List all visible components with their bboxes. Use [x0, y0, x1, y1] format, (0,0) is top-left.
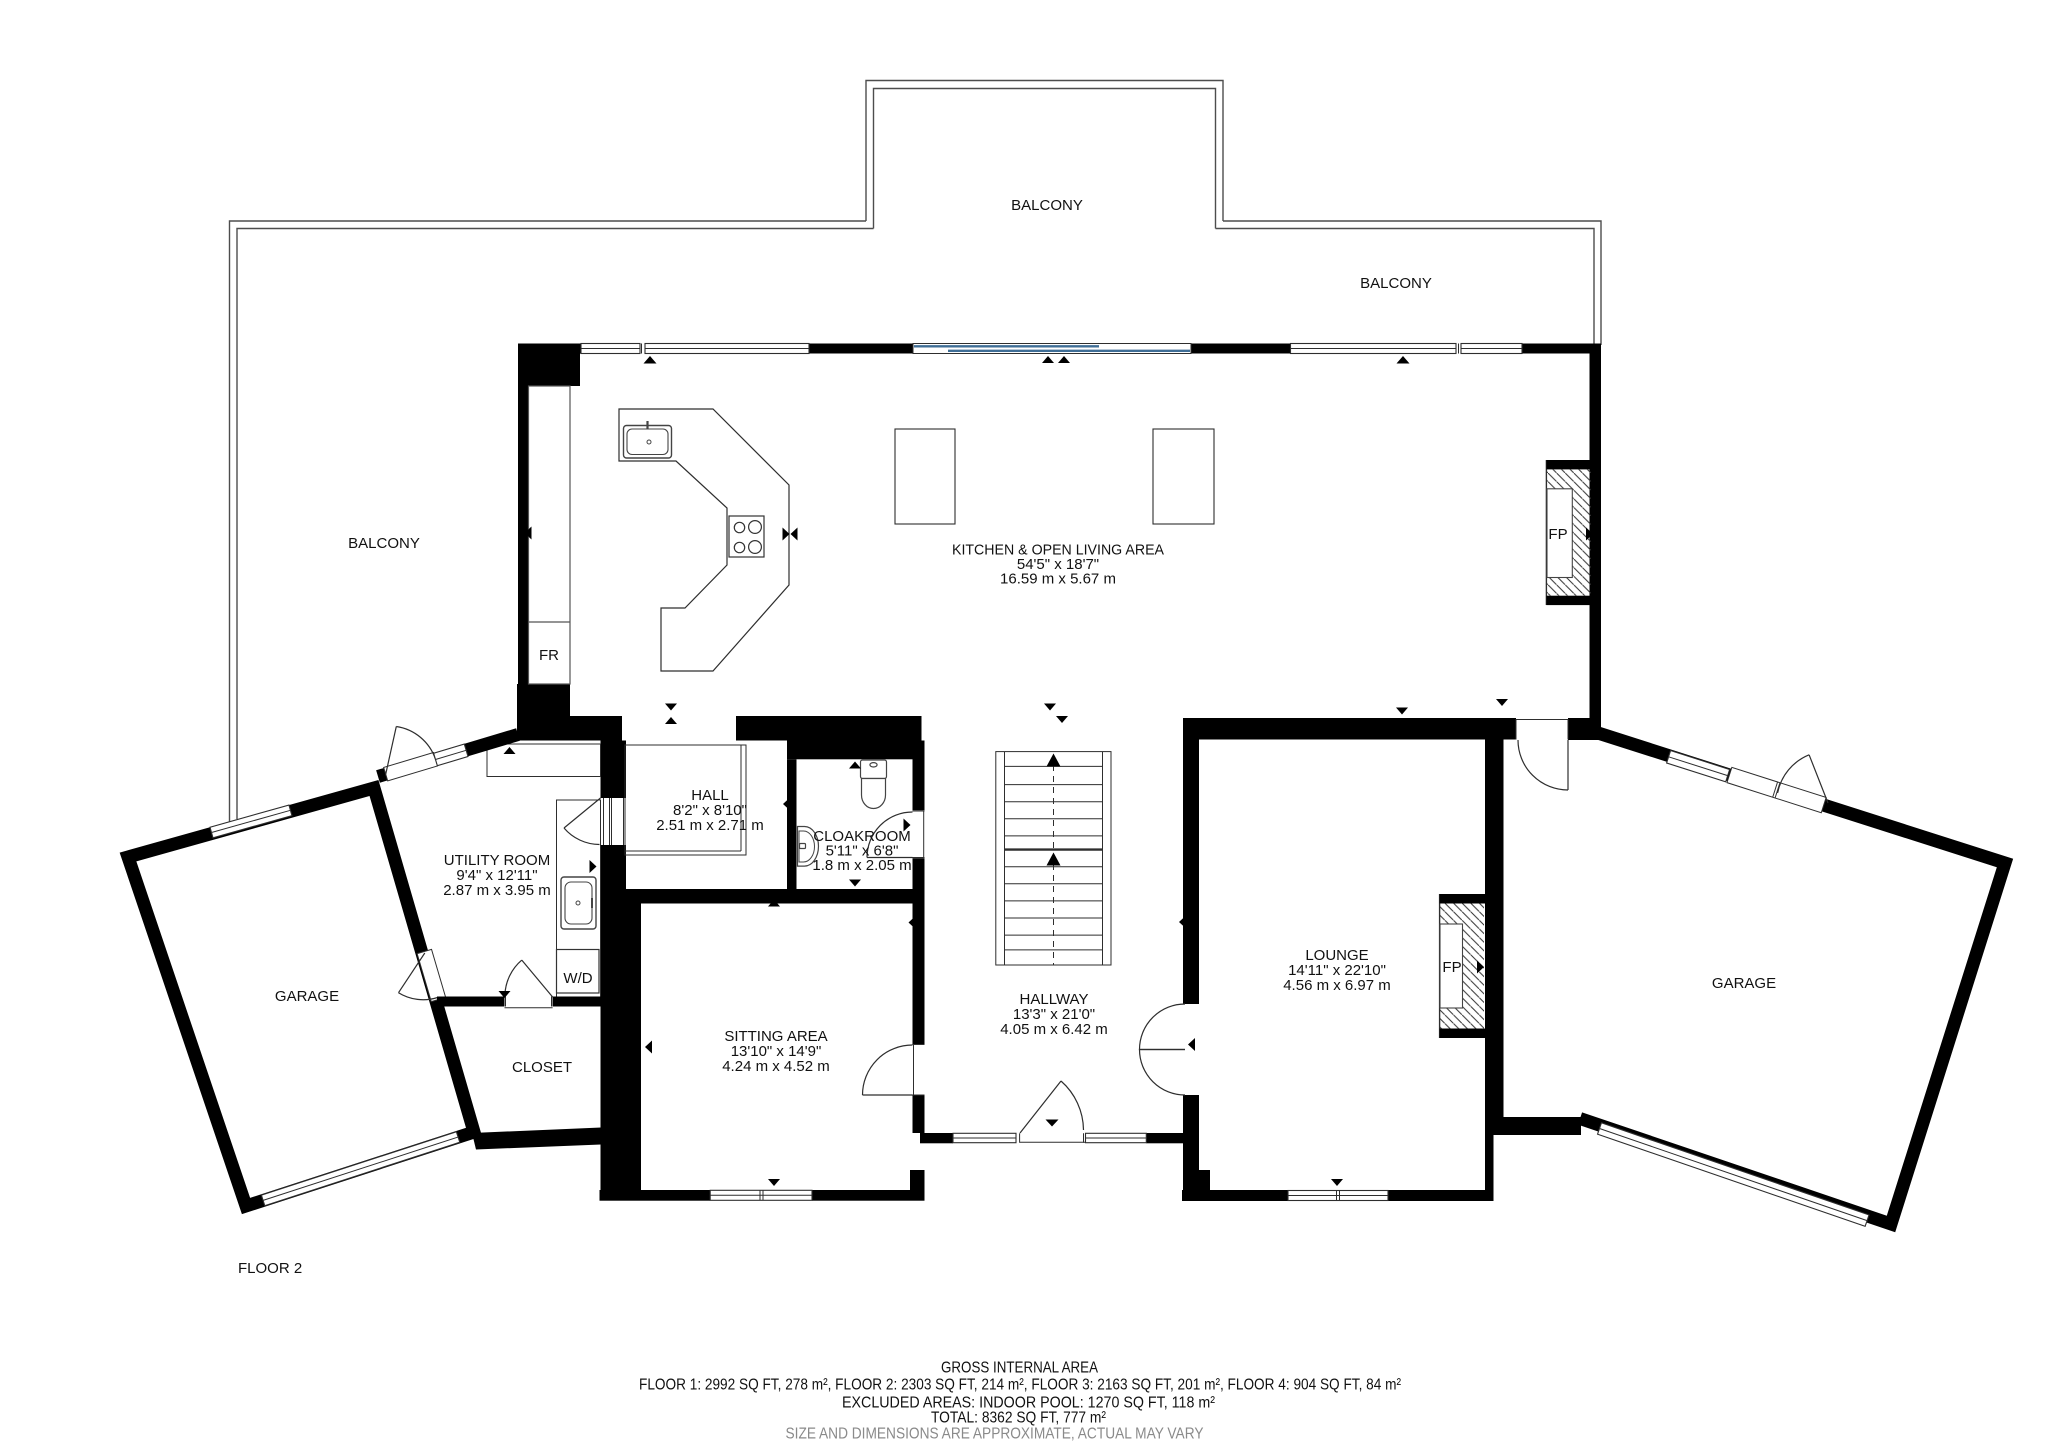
- svg-text:FLOOR 2: FLOOR 2: [238, 1260, 302, 1277]
- svg-text:2.51 m x 2.71 m: 2.51 m x 2.71 m: [656, 817, 764, 834]
- svg-text:TOTAL: 8362 SQ FT, 777 m²: TOTAL: 8362 SQ FT, 777 m²: [931, 1410, 1107, 1427]
- svg-text:GARAGE: GARAGE: [275, 988, 339, 1005]
- svg-text:FP: FP: [1442, 959, 1461, 976]
- svg-text:FR: FR: [539, 647, 559, 664]
- svg-text:FLOOR 1: 2992 SQ FT, 278 m², F: FLOOR 1: 2992 SQ FT, 278 m², FLOOR 2: 23…: [639, 1377, 1402, 1394]
- svg-text:BALCONY: BALCONY: [1360, 275, 1432, 292]
- svg-text:FP: FP: [1548, 526, 1567, 543]
- svg-text:1.8 m x 2.05 m: 1.8 m x 2.05 m: [812, 857, 911, 874]
- svg-text:16.59 m x 5.67 m: 16.59 m x 5.67 m: [1000, 571, 1116, 588]
- svg-text:CLOSET: CLOSET: [512, 1059, 572, 1076]
- svg-text:GARAGE: GARAGE: [1712, 975, 1776, 992]
- svg-text:2.87 m x 3.95 m: 2.87 m x 3.95 m: [443, 882, 551, 899]
- svg-text:GROSS INTERNAL AREA: GROSS INTERNAL AREA: [941, 1360, 1098, 1377]
- svg-text:4.05 m x 6.42 m: 4.05 m x 6.42 m: [1000, 1021, 1108, 1038]
- svg-text:W/D: W/D: [563, 970, 592, 987]
- svg-text:4.24 m x 4.52 m: 4.24 m x 4.52 m: [722, 1058, 830, 1075]
- svg-text:4.56 m x 6.97 m: 4.56 m x 6.97 m: [1283, 977, 1391, 994]
- svg-text:BALCONY: BALCONY: [1011, 197, 1083, 214]
- svg-text:BALCONY: BALCONY: [348, 535, 420, 552]
- svg-text:SIZE AND DIMENSIONS ARE APPROX: SIZE AND DIMENSIONS ARE APPROXIMATE, ACT…: [786, 1426, 1204, 1443]
